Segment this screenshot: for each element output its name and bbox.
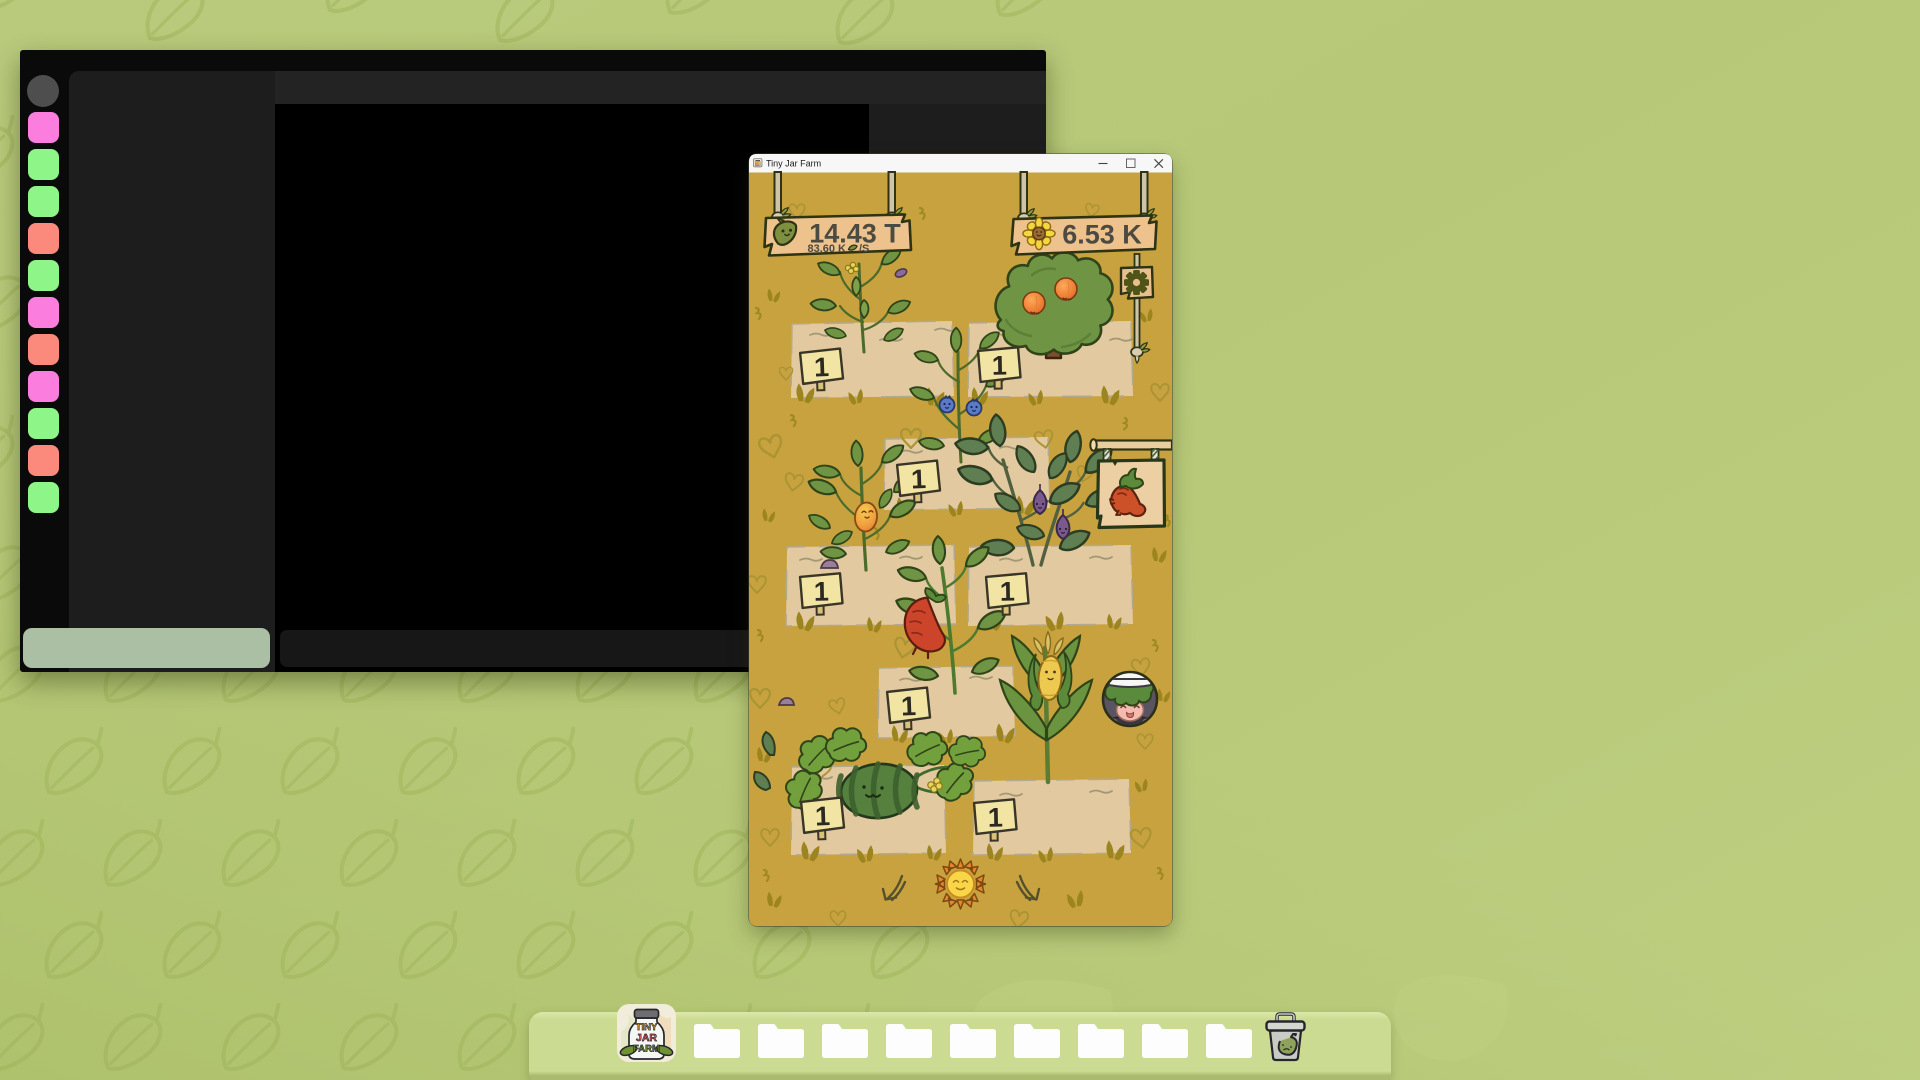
- svg-text:6.53 K: 6.53 K: [1062, 220, 1142, 250]
- svg-text:FARM: FARM: [633, 1044, 660, 1055]
- svg-text:JAR: JAR: [636, 1032, 657, 1044]
- svg-text:/S: /S: [859, 243, 869, 255]
- svg-text:Tiny Jar Farm: Tiny Jar Farm: [766, 159, 821, 169]
- svg-text:83.60 K: 83.60 K: [807, 243, 846, 255]
